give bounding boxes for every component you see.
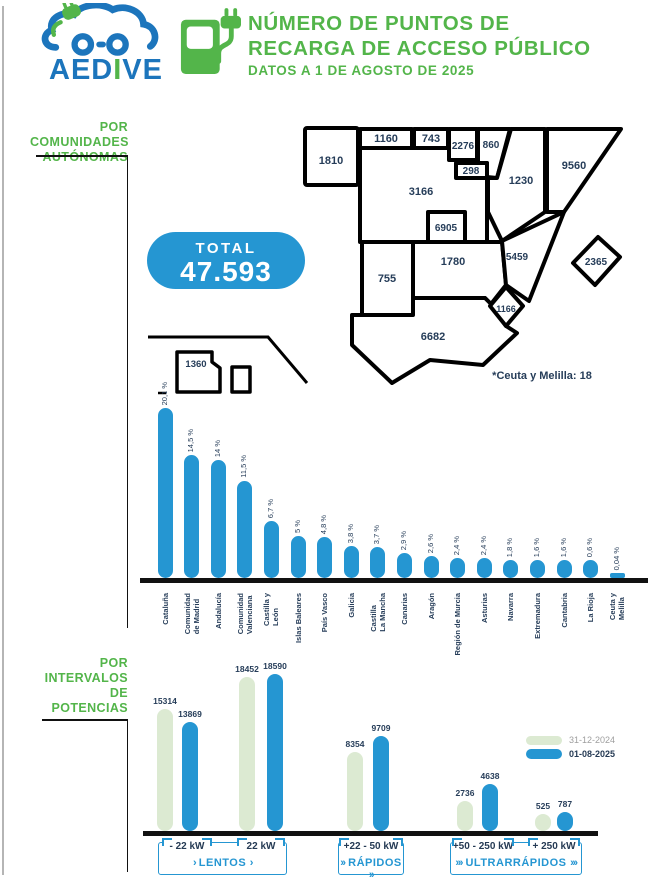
bar-31-12-2024-- 22 kW [157, 709, 173, 831]
bar-category-label: Cantabria [560, 593, 569, 628]
chip-corner-mark [393, 838, 403, 846]
map-value-extremadura: 755 [378, 273, 396, 285]
bar-value-label: 20,1 % [160, 382, 169, 405]
bar-Asturias [477, 558, 492, 578]
bar-value-label: 4,8 % [319, 515, 328, 534]
bar-category-label: Aragón [427, 593, 436, 619]
bar-Islas Baleares [291, 536, 306, 578]
bar-value-label: 1,6 % [559, 538, 568, 557]
bar-category-label: Cataluña [161, 593, 170, 625]
bar-Canarias [397, 553, 412, 578]
chevron-right-icon: ››› [570, 857, 577, 869]
spain-map: 1810 1160 743 2276 860 298 9560 1230 316… [140, 105, 656, 395]
bar-Galicia [344, 546, 359, 578]
section-bracket-line [36, 155, 128, 157]
bar-value-label: 18590 [263, 661, 287, 671]
bar-31-12-2024-+22 - 50 kW [347, 752, 363, 831]
bar-value-label: 1,6 % [532, 538, 541, 557]
map-note-ceuta-melilla: *Ceuta y Melilla: 18 [492, 370, 592, 382]
bar-category-label: Asturias [480, 593, 489, 623]
bar-Cantabria [557, 560, 572, 578]
legend-swatch-2024 [526, 736, 562, 745]
bar-value-label: 787 [558, 799, 572, 809]
map-value-cantabria: 743 [422, 133, 440, 145]
section-bracket-line [42, 719, 128, 721]
map-value-cataluna: 9560 [562, 160, 586, 172]
bar-value-label: 2,4 % [479, 536, 488, 555]
bar-category-label: Extremadura [533, 593, 542, 639]
chip-corner-mark [504, 838, 514, 846]
map-value-pais-vasco: 2276 [452, 141, 475, 152]
bar-value-label: 525 [536, 801, 550, 811]
bar-value-label: 14 % [213, 440, 222, 457]
legend-label-2024: 31-12-2024 [569, 735, 615, 745]
bar-value-label: 4638 [481, 771, 500, 781]
chart-axis [140, 578, 648, 583]
bar-value-label: 0,04 % [612, 547, 621, 570]
section-bracket-line [127, 155, 129, 628]
section-label-power: POR INTERVALOS DE POTENCIAS [30, 656, 128, 716]
bar-category-label: La Rioja [586, 593, 595, 622]
bar-Castilla La Mancha [370, 547, 385, 578]
bar-31-12-2024-+50 - 250 kW [457, 801, 473, 831]
map-value-canarias: 1360 [185, 359, 206, 370]
map-value-comunidad-valenciana: 5459 [506, 252, 529, 263]
bar-01-08-2025-+22 - 50 kW [373, 736, 389, 831]
map-region-castilla-la-mancha [413, 242, 506, 304]
bar-01-08-2025-+50 - 250 kW [482, 784, 498, 831]
chevron-right-icon: ›› [340, 857, 344, 869]
power-chip: 22 kW [237, 838, 285, 854]
bar-value-label: 1,8 % [505, 538, 514, 557]
map-value-galicia: 1810 [319, 155, 343, 167]
power-chip: - 22 kW [162, 838, 212, 854]
chip-corner-mark [528, 838, 538, 846]
page-edge-line [2, 6, 4, 875]
chip-corner-mark [162, 838, 172, 846]
bar-value-label: 11,5 % [239, 455, 248, 478]
bar-category-label: Canarias [400, 593, 409, 625]
bar-value-label: 5 % [293, 520, 302, 533]
bar-01-08-2025-22 kW [267, 674, 283, 831]
bar-value-label: 3,8 % [346, 524, 355, 543]
chip-corner-mark [570, 838, 580, 846]
bar-category-label: Comunidad Valenciana [236, 593, 254, 634]
bar-category-label: Comunidad de Madrid [183, 593, 201, 634]
bar-31-12-2024-+ 250 kW [535, 814, 551, 831]
bar-01-08-2025-+ 250 kW [557, 812, 573, 831]
map-region-canarias [177, 352, 220, 392]
bar-La Rioja [583, 560, 598, 578]
bar-value-label: 14,5 % [186, 429, 195, 452]
bar-value-label: 2,6 % [426, 534, 435, 553]
bar-País Vasco [317, 537, 332, 578]
chevron-right-icon: › [193, 857, 195, 869]
speed-label-lentos: › LENTOS › [158, 857, 287, 869]
bar-value-label: 0,6 % [585, 538, 594, 557]
bar-Andalucía [211, 460, 226, 578]
map-value-madrid: 6905 [435, 223, 458, 234]
bar-Comunidad Valenciana [237, 481, 252, 578]
bar-value-label: 2,9 % [399, 531, 408, 550]
bar-Región de Murcia [450, 558, 465, 578]
legend-label-2025: 01-08-2025 [569, 749, 615, 759]
bar-value-label: 18452 [235, 664, 259, 674]
bar-Extremadura [530, 560, 545, 578]
map-region-canarias-island [232, 367, 250, 392]
bar-Navarra [503, 560, 518, 578]
map-value-andalucia: 6682 [421, 331, 445, 343]
map-value-murcia: 1166 [496, 304, 516, 314]
map-value-castilla-y-leon: 3166 [409, 186, 433, 198]
bar-category-label: Andalucía [214, 593, 223, 629]
speed-label-ultrarrapidos: ››› ULTRARRÁPIDOS ››› [450, 857, 582, 869]
bar-value-label: 13869 [178, 709, 202, 719]
chip-corner-mark [275, 838, 285, 846]
chip-corner-mark [237, 838, 247, 846]
bar-category-label: País Vasco [320, 593, 329, 632]
bar-value-label: 8354 [346, 739, 365, 749]
bar-category-label: Castilla La Mancha [369, 593, 387, 632]
bar-Cataluña [158, 408, 173, 578]
chip-corner-mark [202, 838, 212, 846]
map-value-asturias: 1160 [374, 133, 398, 145]
power-chip: +50 - 250 kW [452, 838, 514, 854]
bar-Comunidad de Madrid [184, 455, 199, 578]
bar-value-label: 15314 [153, 696, 177, 706]
power-chip-label: +22 - 50 kW [344, 841, 399, 852]
chevron-right-icon: ›› [369, 869, 373, 881]
bar-category-label: Galicia [347, 593, 356, 618]
bar-category-label: Navarra [506, 593, 515, 621]
bar-Ceuta y Melilla [610, 573, 625, 578]
bar-value-label: 2736 [456, 788, 475, 798]
legend-entry-2024: 31-12-2024 [526, 735, 615, 745]
speed-label-rapidos: ›› RÁPIDOS ›› [338, 857, 404, 881]
map-value-castilla-la-mancha: 1780 [441, 256, 465, 268]
section-label-communities: POR COMUNIDADES AUTÓNOMAS [30, 120, 128, 165]
legend-swatch-2025 [526, 749, 562, 759]
bar-Aragón [424, 556, 439, 578]
power-chip: +22 - 50 kW [339, 838, 403, 854]
power-chip-label: - 22 kW [169, 841, 204, 852]
map-canarias-divider [148, 337, 307, 383]
charging-station-icon [179, 8, 241, 78]
map-value-navarra: 860 [483, 140, 500, 151]
bar-category-label: Islas Baleares [294, 593, 303, 643]
infographic: AEDIVE NÚMERO DE PUNTOS DE RECARGA DE AC… [0, 0, 656, 881]
bar-value-label: 9709 [372, 723, 391, 733]
chevron-right-icon: ››› [455, 857, 462, 869]
chip-corner-mark [339, 838, 349, 846]
bar-value-label: 3,7 % [372, 525, 381, 544]
chart-axis [143, 831, 598, 836]
power-chip-label: 22 kW [247, 841, 276, 852]
bar-01-08-2025-- 22 kW [182, 722, 198, 831]
page-subtitle: DATOS A 1 DE AGOSTO DE 2025 [248, 63, 474, 78]
aedive-wordmark: AEDIVE [36, 54, 176, 87]
aedive-car-logo [36, 3, 172, 57]
map-value-aragon: 1230 [509, 175, 533, 187]
map-value-baleares: 2365 [585, 257, 608, 268]
bar-31-12-2024-22 kW [239, 677, 255, 831]
chevron-right-icon: › [250, 857, 252, 869]
page-title: NÚMERO DE PUNTOS DE RECARGA DE ACCESO PÚ… [248, 11, 591, 61]
bar-Castilla y León [264, 521, 279, 578]
bar-value-label: 6,7 % [266, 499, 275, 518]
legend-entry-2025: 01-08-2025 [526, 749, 615, 759]
bar-category-label: Castilla y León [262, 593, 280, 626]
power-chip: + 250 kW [528, 838, 580, 854]
section-bracket-line [127, 719, 129, 872]
map-value-la-rioja: 298 [463, 166, 480, 177]
chip-corner-mark [452, 838, 462, 846]
bar-category-label: Región de Murcia [453, 593, 462, 656]
bar-category-label: Ceuta y Melilla [608, 593, 626, 620]
bar-value-label: 2,4 % [452, 536, 461, 555]
